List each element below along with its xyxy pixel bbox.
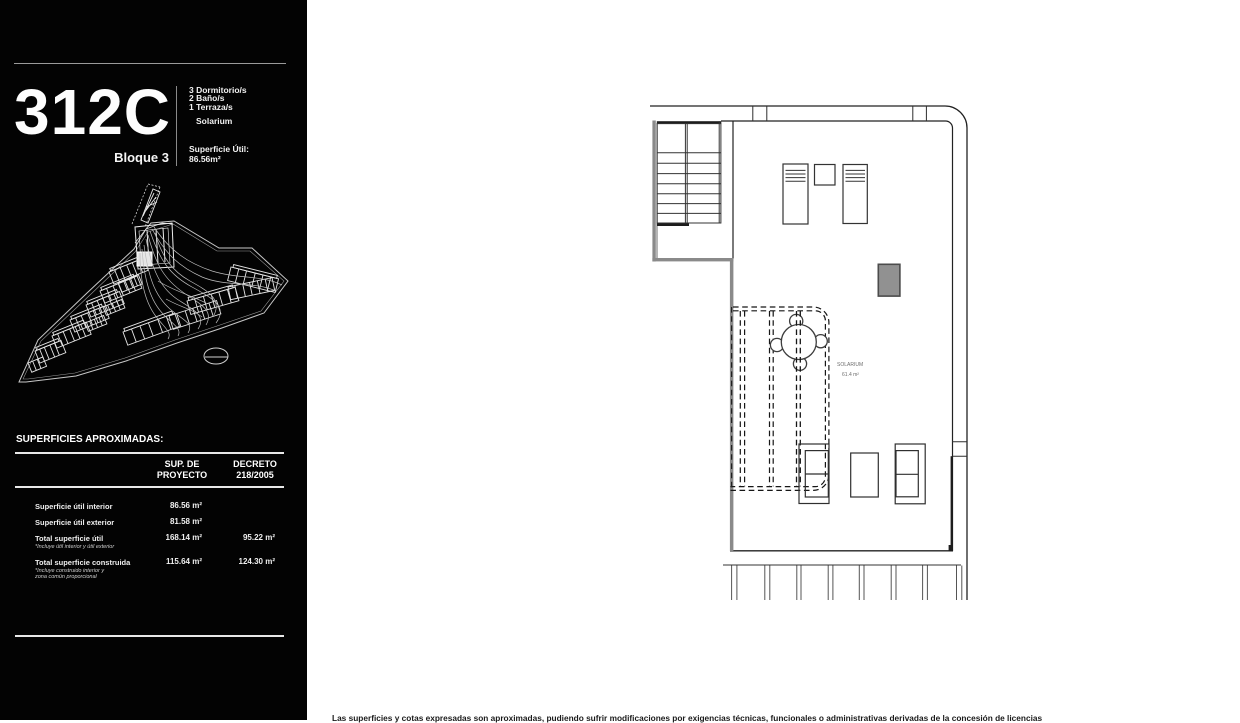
svg-text:61.4 m²: 61.4 m²	[842, 372, 859, 378]
svg-text:SOLARIUM: SOLARIUM	[837, 362, 863, 368]
